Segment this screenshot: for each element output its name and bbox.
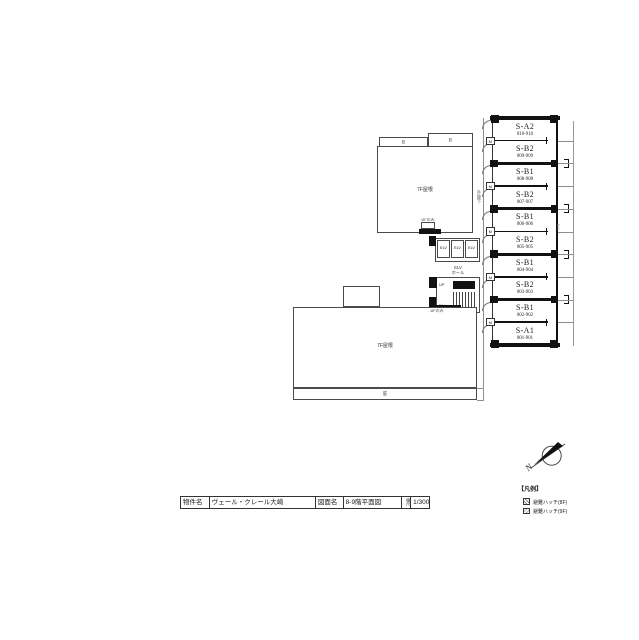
balcony-dim-note: 8.5 — [556, 224, 561, 230]
floor-plan-sheet: 外廊下 庇 庇 7F屋根 ↓8Fのみ ELV ELV ELV ELV ホール U… — [0, 0, 639, 640]
upper-roof-label: 7F屋根 — [377, 186, 473, 193]
column-square — [551, 160, 559, 168]
meter-box: M — [486, 227, 496, 235]
legend-item-label: 避難ハッチ(8F) — [533, 499, 567, 506]
elevator-1-label: ELV — [438, 246, 449, 250]
scale-value: 1/300 — [410, 497, 429, 508]
meter-box: M — [486, 273, 496, 281]
unit-number-label: 806-906 — [492, 222, 558, 227]
unit-number-label: 810-910 — [492, 132, 558, 137]
unit-number-label: 809-909 — [492, 154, 558, 159]
unit-row: S-B2807-907 — [492, 186, 558, 209]
separation-end-tick — [546, 228, 547, 235]
column-square — [490, 296, 498, 304]
north-compass: N — [524, 438, 580, 480]
separation-wall-medium — [493, 231, 548, 233]
property-name-label: 物件名 — [181, 497, 209, 508]
unit-number-label: 804-904 — [492, 268, 558, 273]
separation-wall-medium — [493, 276, 548, 278]
unit-type-label: S-B1 — [492, 168, 558, 176]
drawing-name-label: 図面名 — [315, 497, 343, 508]
elevator-2-label: ELV — [452, 246, 463, 250]
upper-small-tab — [421, 222, 435, 229]
separation-wall-heavy — [491, 298, 558, 301]
unit-type-label: S-B1 — [492, 304, 558, 312]
column-square — [551, 296, 559, 304]
lower-note: ↓8Fのみ — [429, 308, 444, 314]
drawing-name-value: 8-9階平面図 — [343, 497, 402, 508]
unit-row: S-A2810-910 — [492, 118, 558, 141]
separation-wall-medium — [493, 140, 548, 142]
unit-row: S-A1801-901 — [492, 322, 558, 345]
meter-box: M — [486, 318, 496, 326]
core-wall-2 — [429, 277, 437, 288]
upper-roof-tab-right: 庇 — [428, 133, 473, 147]
corridor-connector-bottom — [477, 400, 484, 401]
separation-wall-medium — [493, 321, 548, 323]
elevator-3-label: ELV — [466, 246, 477, 250]
canopy-strip-label: 庇 — [293, 391, 477, 397]
stair-up-label: UP — [439, 282, 445, 287]
lower-roof-notch — [343, 286, 380, 307]
meter-box: M — [486, 182, 496, 190]
balcony-divider-line — [558, 300, 574, 301]
unit-row: S-B2805-905 — [492, 232, 558, 255]
balcony-divider-line — [558, 277, 574, 278]
unit-number-label: 801-901 — [492, 336, 558, 341]
separation-end-tick — [546, 183, 547, 190]
unit-row: S-B1806-906 — [492, 209, 558, 232]
unit-type-label: S-B1 — [492, 213, 558, 221]
core-wall-1 — [429, 236, 436, 246]
unit-type-label: S-B2 — [492, 145, 558, 153]
separation-wall-heavy — [491, 162, 558, 165]
unit-row: S-B2803-903 — [492, 277, 558, 300]
separation-wall-heavy — [491, 207, 558, 210]
separation-wall-medium — [493, 185, 548, 187]
column-square — [551, 205, 559, 213]
unit-type-label: S-B2 — [492, 281, 558, 289]
balcony-divider-line — [558, 141, 574, 142]
balcony-divider-line — [558, 163, 574, 164]
upper-tab-left-label: 庇 — [380, 140, 427, 145]
unit-type-label: S-A1 — [492, 327, 558, 335]
unit-number-label: 808-908 — [492, 177, 558, 182]
stair-landing-bar — [453, 281, 475, 289]
unit-stack: S-A2810-910S-B2809-909S-B1808-908S-B2807… — [492, 118, 558, 345]
separation-end-tick — [546, 273, 547, 280]
unit-row: S-B1808-908 — [492, 163, 558, 186]
corridor-connector-top — [477, 388, 484, 389]
separation-end-tick — [546, 137, 547, 144]
separation-end-tick — [546, 319, 547, 326]
scale-label: 縮尺 — [401, 497, 410, 508]
legend-hatch-swatch-icon — [523, 498, 530, 505]
upper-tab-right-label: 庇 — [429, 138, 472, 143]
balcony-zone — [558, 121, 574, 346]
unit-number-label: 802-902 — [492, 313, 558, 318]
balcony-divider-line — [558, 322, 574, 323]
meter-box: M — [486, 137, 496, 145]
unit-row: S-B1802-902 — [492, 300, 558, 323]
lower-roof-label: 7F屋根 — [293, 342, 477, 349]
elevator-cell-2: ELV — [451, 240, 464, 258]
unit-type-label: S-A2 — [492, 123, 558, 131]
unit-number-label: 803-903 — [492, 290, 558, 295]
legend-title: 【凡例】 — [518, 484, 542, 493]
upper-core-wall — [419, 229, 441, 234]
unit-row: S-B2809-909 — [492, 141, 558, 164]
balcony-divider-line — [558, 186, 574, 187]
unit-type-label: S-B2 — [492, 191, 558, 199]
unit-type-label: S-B1 — [492, 259, 558, 267]
column-square — [490, 205, 498, 213]
elevator-cell-3: ELV — [465, 240, 478, 258]
property-name-value: ヴェール・クレール大崎 — [209, 497, 315, 508]
unit-row: S-B1804-904 — [492, 254, 558, 277]
column-square — [490, 160, 498, 168]
balcony-divider-line — [558, 254, 574, 255]
compass-north-label: N — [524, 461, 535, 474]
balcony-divider-line — [558, 232, 574, 233]
elevator-hall-line2: ホール — [452, 270, 465, 275]
separation-wall-heavy — [491, 253, 558, 256]
elevator-hall-label: ELV ホール — [446, 266, 470, 276]
unit-type-label: S-B2 — [492, 236, 558, 244]
title-block: 物件名 ヴェール・クレール大崎 図面名 8-9階平面図 縮尺 1/300 — [180, 496, 430, 509]
column-square — [490, 250, 498, 258]
unit-number-label: 807-907 — [492, 200, 558, 205]
balcony-divider-line — [558, 209, 574, 210]
column-square — [551, 250, 559, 258]
legend-item-label: 避難ハッチ(9F) — [533, 508, 567, 515]
legend-hatch-swatch-icon — [523, 508, 530, 515]
elevator-cell-1: ELV — [437, 240, 450, 258]
unit-number-label: 805-905 — [492, 245, 558, 250]
